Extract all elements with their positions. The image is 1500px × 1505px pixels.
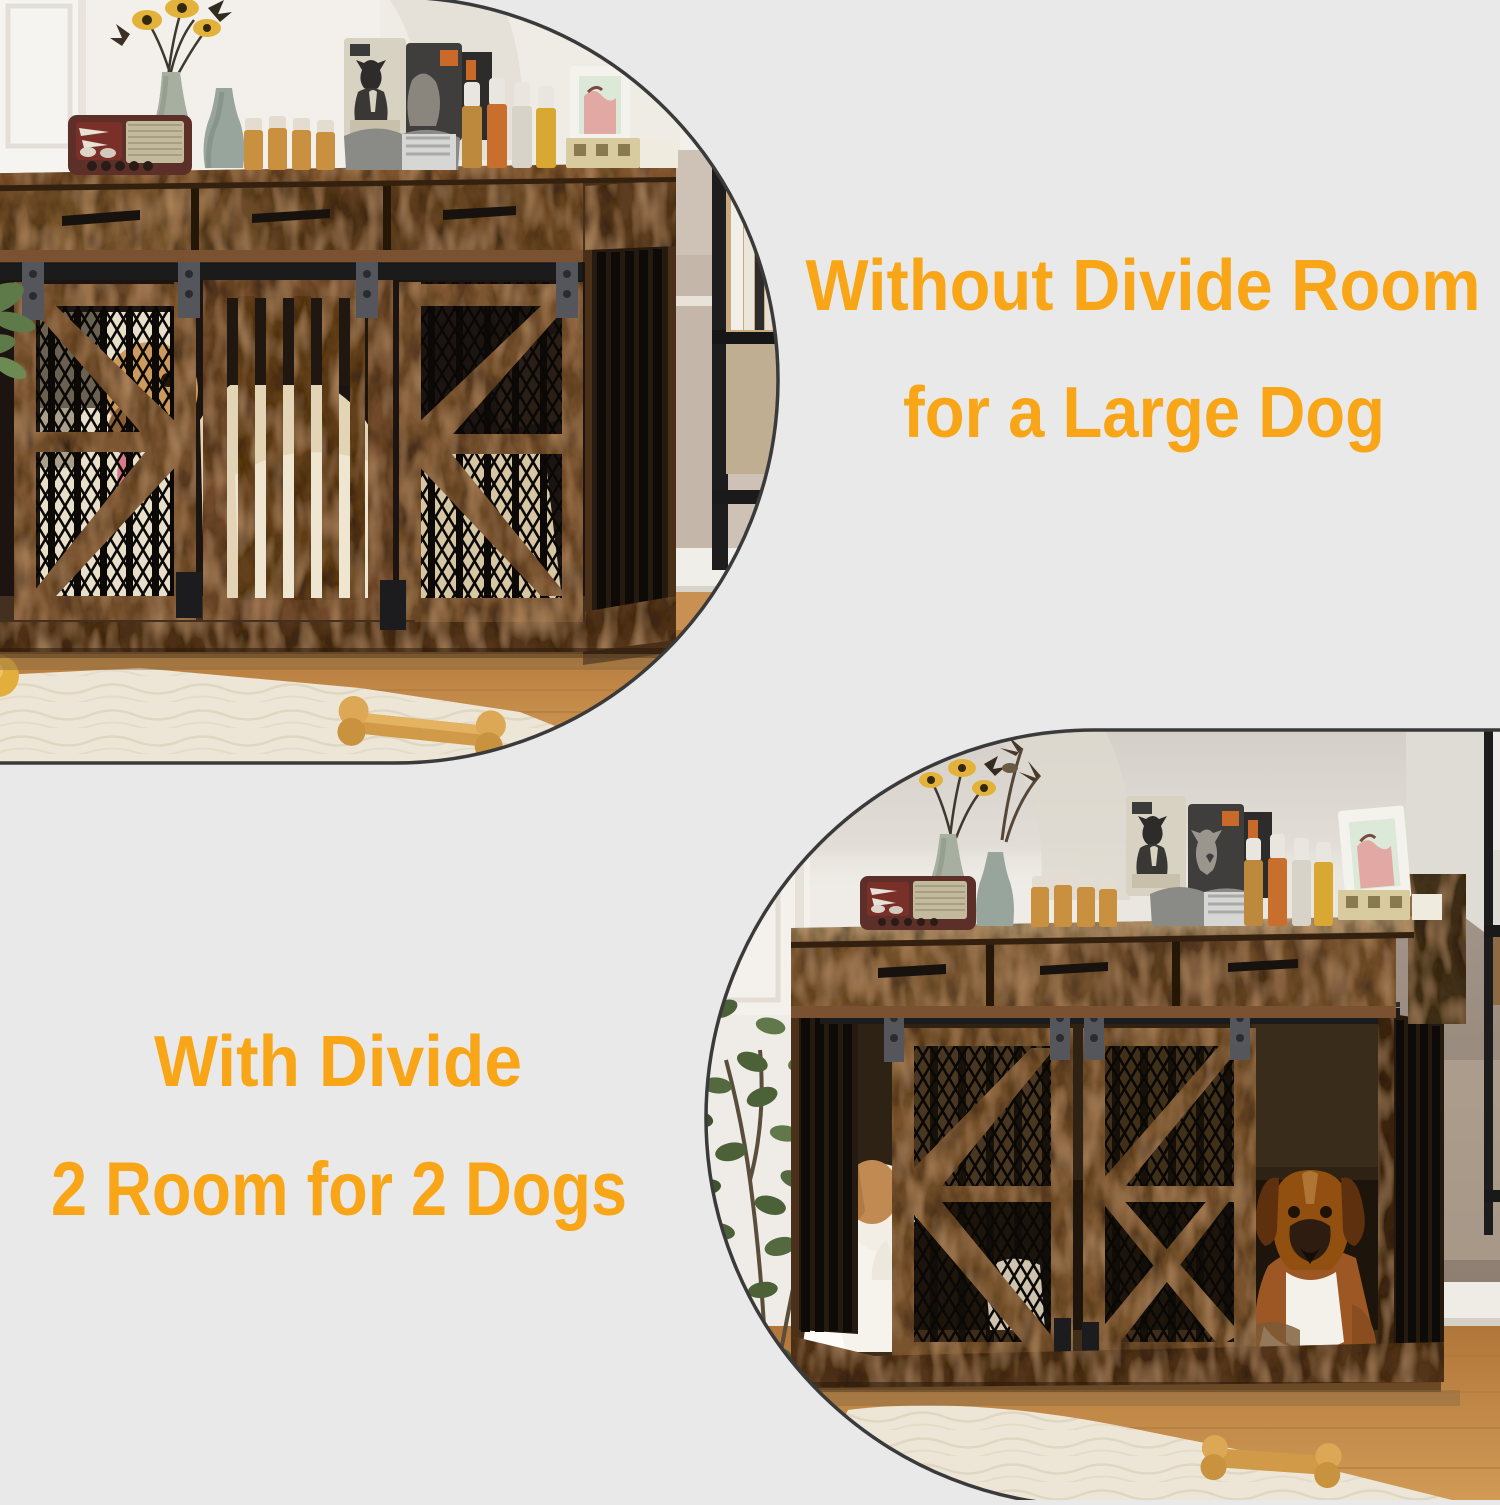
svg-text:2 Room for 2 Dogs: 2 Room for 2 Dogs bbox=[51, 1147, 627, 1232]
svg-text:Without Divide Room: Without Divide Room bbox=[806, 246, 1481, 326]
svg-text:With Divide: With Divide bbox=[154, 1022, 522, 1102]
svg-text:for a Large Dog: for a Large Dog bbox=[903, 373, 1385, 453]
